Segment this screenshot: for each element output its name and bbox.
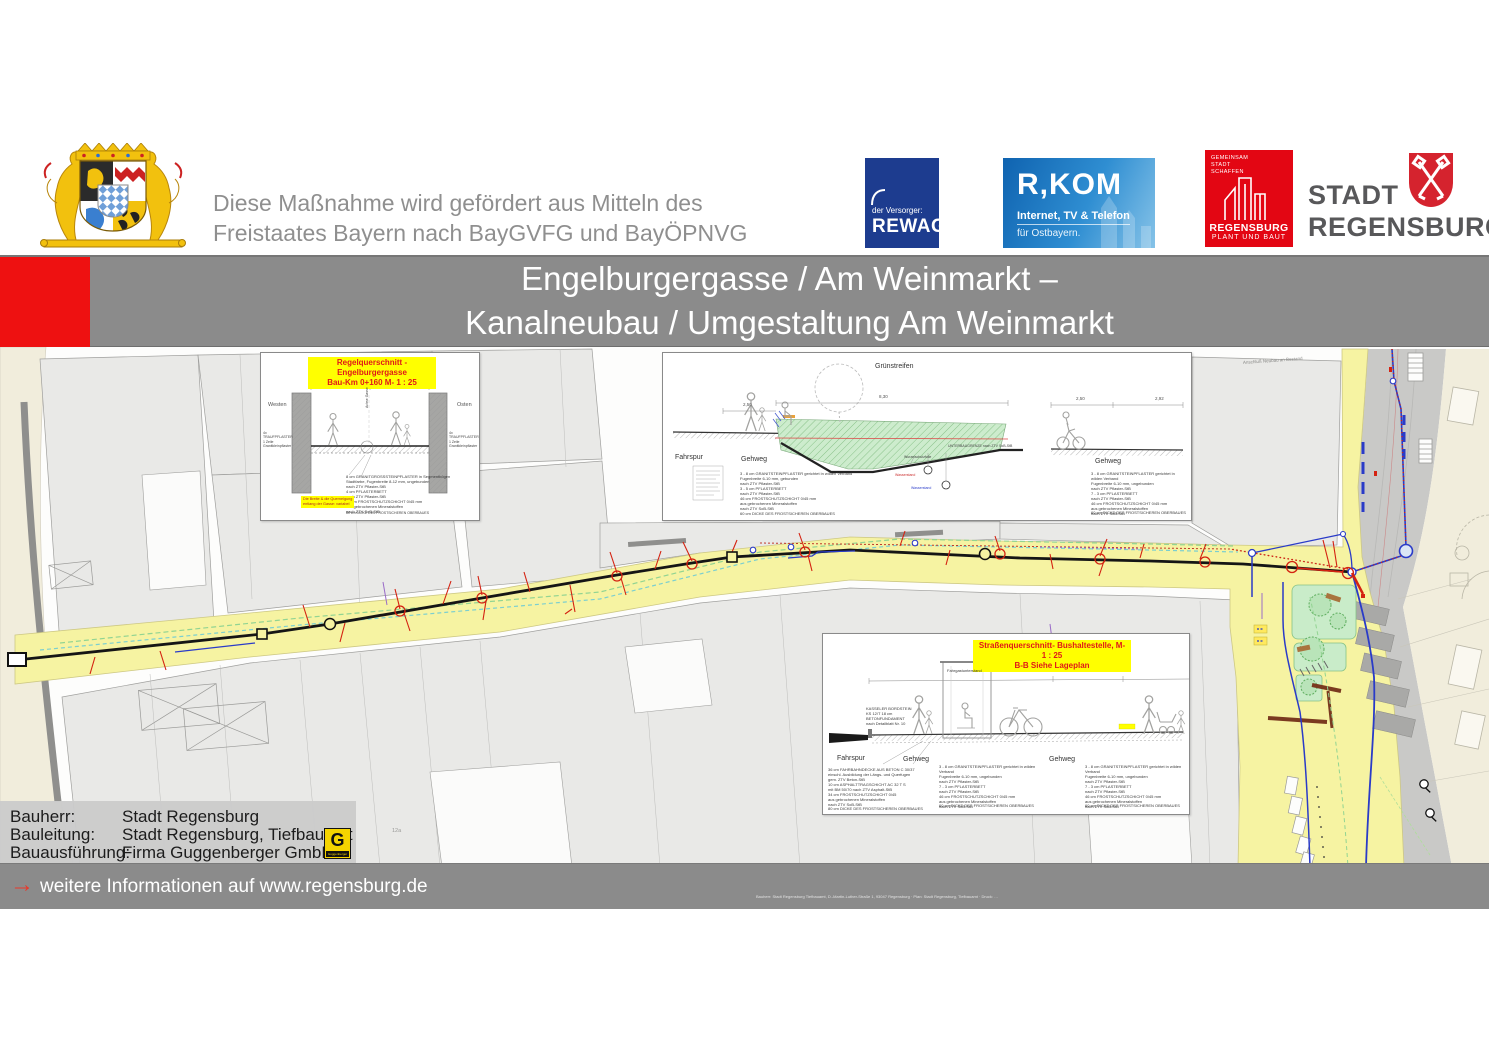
pavement-buildup-note: 8 cm GRANITGROSSSTEINPFLASTER in Segment… xyxy=(346,474,474,514)
rpub-name1: REGENSBURG xyxy=(1205,222,1293,234)
shelter-label: Fahrgastunterstand xyxy=(947,668,989,673)
section2-title: Grünstreifen xyxy=(875,363,914,370)
label-gehweg-right: Gehweg xyxy=(1095,458,1121,465)
dim-right2: 2,92 xyxy=(1155,396,1164,401)
red-accent-square xyxy=(0,257,90,349)
crossed-keys-shield-icon xyxy=(1406,150,1456,210)
rkom-subline2: für Ostbayern. xyxy=(1017,228,1080,239)
cross-section-regelquerschnitt: Regelquerschnitt - Engelburgergasse Bau-… xyxy=(260,352,480,521)
dim-right1: 2,50 xyxy=(1076,396,1085,401)
info-label: Bauleitung: xyxy=(10,825,122,845)
left-buildup-note: 36 cm FAHRBAHNDECKE AUS BETON C 30/37 ei… xyxy=(828,767,933,807)
info-value: Firma Guggenberger GmbH xyxy=(122,843,334,862)
rewag-name: REWAG xyxy=(872,216,946,238)
page-title: Engelburgergasse / Am Weinmarkt – Kanaln… xyxy=(90,257,1489,349)
bavaria-coat-of-arms-icon xyxy=(18,143,208,253)
stadt-name2: REGENSBURG xyxy=(1308,212,1489,243)
stroller-icon xyxy=(1157,712,1176,734)
rpub-name2: PLANT UND BAUT xyxy=(1205,234,1293,241)
info-label: Bauausführung: xyxy=(10,843,122,863)
arrow-right-icon: → xyxy=(10,871,34,899)
cyclist-icon xyxy=(1057,412,1085,449)
label-fahrspur: Fahrspur xyxy=(837,755,865,762)
bicycle-icon xyxy=(1000,708,1042,736)
guggenberger-name: Guggenberger xyxy=(326,851,349,857)
buildings-icon xyxy=(1221,174,1277,220)
poster-header: Diese Maßnahme wird gefördert aus Mittel… xyxy=(0,0,1489,255)
site-plan-area: Anschluß Neubau an Bestand 12a xyxy=(0,347,1489,867)
page-title-line1: Engelburgergasse / Am Weinmarkt – xyxy=(90,257,1489,301)
rkom-logo: R,KOM Internet, TV & Telefon für Ostbaye… xyxy=(1003,158,1155,248)
right-buildup-footer: 60 cm DICKE DES FROSTSICHEREN OBERBAUES xyxy=(1085,803,1180,808)
info-value: Stadt Regensburg, Tiefbauamt xyxy=(122,825,353,844)
info-row-bauausfuehrung: Bauausführung:Firma Guggenberger GmbH xyxy=(10,843,334,863)
buildup-footer: 60 cm DICKE DES FROSTSICHEREN OBERBAUES xyxy=(346,511,429,515)
cross-section-gruenstreifen: Grünstreifen Fahrspur Gehweg Gehweg 8,30… xyxy=(662,352,1192,521)
more-info-link[interactable]: weitere Informationen auf www.regensburg… xyxy=(40,876,428,898)
west-note: 4x TRAUFPFLASTER 1 Zeile Granitkleinpfla… xyxy=(263,431,293,449)
label-gehweg-right: Gehweg xyxy=(1049,756,1075,763)
right-buildup-footer: 60 cm DICKE DES FROSTSICHEREN OBERBAUES xyxy=(1091,510,1186,515)
variable-width-note: Die Breite & die Querneigung entlang der… xyxy=(301,496,354,508)
rewag-tagline: der Versorger: xyxy=(872,206,923,215)
rkom-name: R,KOM xyxy=(1017,168,1122,202)
label-osten: Osten xyxy=(457,402,472,408)
curb-note: KASSELER BORDSTEIN KS 12/T 18 cm BETONFU… xyxy=(866,706,926,726)
regensburg-plant-und-baut-logo: GEMEINSAM STADT SCHAFFEN REGENSBURG PLAN… xyxy=(1205,150,1293,247)
project-info-box: Bauherr:Stadt Regensburg Bauleitung:Stad… xyxy=(0,801,356,863)
east-note: 4x TRAUFPFLASTER 1 Zeile Granitkleinpfla… xyxy=(449,431,479,449)
rewag-swoosh-icon xyxy=(870,188,886,206)
dim-total: 8,30 xyxy=(879,394,888,399)
rpub-claim: GEMEINSAM STADT SCHAFFEN xyxy=(1211,155,1248,176)
water-level-blue: Wasserstand xyxy=(911,486,931,490)
cross-section-bushaltestelle: Straßenquerschnitt- Bushaltestelle, M- 1… xyxy=(822,633,1190,815)
guggenberger-letter: G xyxy=(325,830,350,851)
label-gehweg-left: Gehweg xyxy=(741,456,767,463)
page-title-line2: Kanalneubau / Umgestaltung Am Weinmarkt xyxy=(90,301,1489,345)
footer-small-print: Bauherr: Stadt Regensburg Tiefbauamt, D.… xyxy=(756,894,1216,899)
title-bar: Engelburgergasse / Am Weinmarkt – Kanaln… xyxy=(0,255,1489,347)
label-westen: Westen xyxy=(268,402,287,408)
info-row-bauherr: Bauherr:Stadt Regensburg xyxy=(10,807,259,827)
label-fahrspur: Fahrspur xyxy=(675,454,703,461)
stadt-regensburg-logo: STADT REGENSBURG xyxy=(1308,150,1478,250)
rkom-subline1: Internet, TV & Telefon xyxy=(1017,210,1130,225)
rewag-logo: der Versorger: REWAG xyxy=(865,158,939,248)
section1-title: Regelquerschnitt - Engelburgergasse Bau-… xyxy=(308,357,436,389)
stadt-name1: STADT xyxy=(1308,180,1399,211)
parcel-number: 12a xyxy=(392,828,402,834)
mid-buildup-footer: 60 cm DICKE DES FROSTSICHEREN OBERBAUES xyxy=(939,803,1034,808)
dim-left: 2,50 xyxy=(743,402,752,407)
label-wurzelschutzfolie: Wurzelschutzfolie xyxy=(904,455,931,459)
canal-end-structure xyxy=(8,653,26,666)
section3-title: Straßenquerschnitt- Bushaltestelle, M- 1… xyxy=(973,640,1131,672)
axis-label: Achse Gasse xyxy=(365,387,369,408)
info-label: Bauherr: xyxy=(10,807,122,827)
guggenberger-logo: G Guggenberger xyxy=(324,828,351,859)
label-unterbaugrenze: UNTERBAUGRENZE nach ZTV SoB-StB xyxy=(948,444,1012,448)
left-buildup-note: 3 - 8 cm GRANITSTEINPFLASTER gerichtet i… xyxy=(740,471,900,511)
left-buildup-footer: 60 cm DICKE DES FROSTSICHEREN OBERBAUES xyxy=(740,511,835,516)
left-buildup-footer: 80 cm DICKE DES FROSTSICHEREN OBERBAUES xyxy=(828,806,923,811)
funding-statement: Diese Maßnahme wird gefördert aus Mittel… xyxy=(213,188,747,248)
label-gehweg-left: Gehweg xyxy=(903,756,929,763)
info-value: Stadt Regensburg xyxy=(122,807,259,826)
footer-bar: → weitere Informationen auf www.regensbu… xyxy=(0,863,1489,909)
info-row-bauleitung: Bauleitung:Stadt Regensburg, Tiefbauamt xyxy=(10,825,353,845)
